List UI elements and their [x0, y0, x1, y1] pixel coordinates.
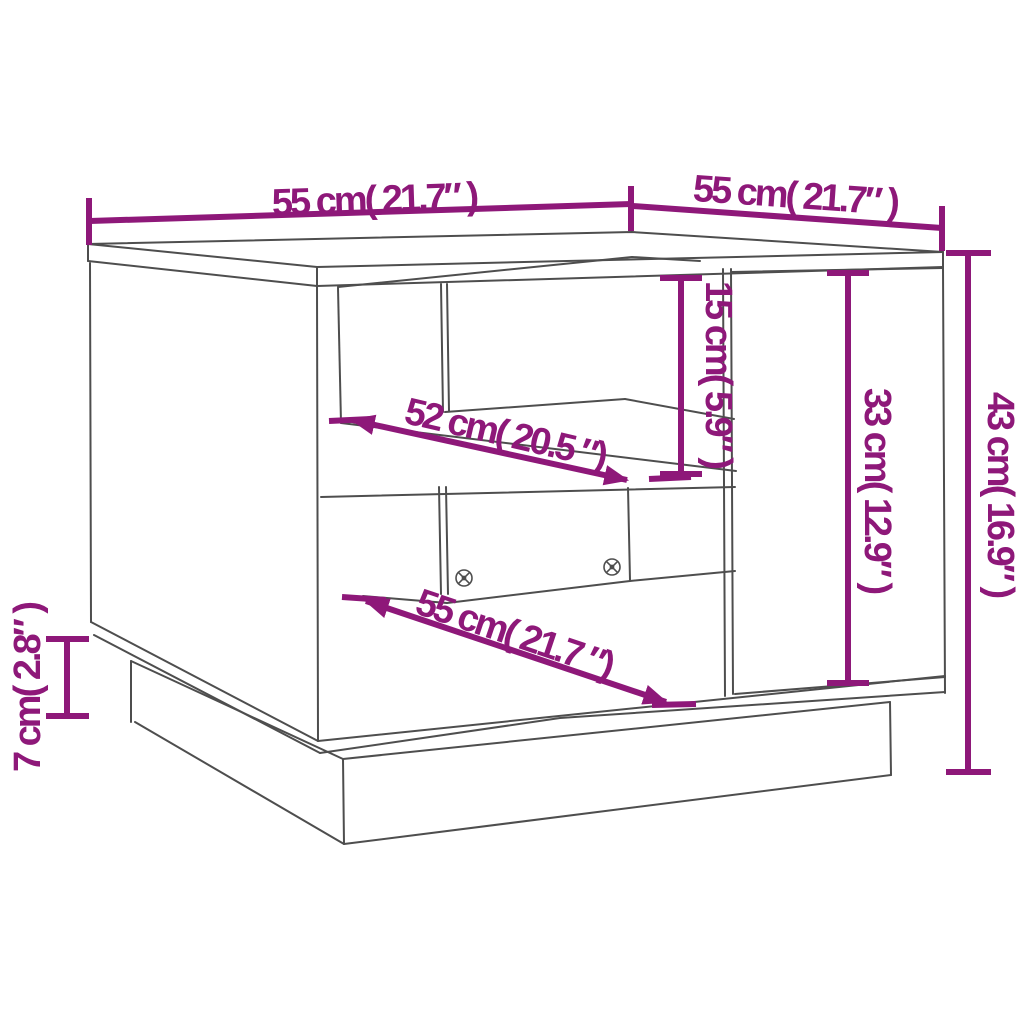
tabletop-front-edges: [88, 244, 943, 267]
dimension-label: 55 cm( 21.7 ″): [410, 582, 618, 687]
dimension-top-depth: 55 cm( 21.7″ ): [633, 168, 942, 251]
dimension-shelf-depth: 52 cm( 20.5 ″): [329, 391, 691, 480]
left-panel-outer-edge: [90, 263, 91, 622]
plinth-front-corner: [343, 759, 344, 844]
back-upright-lower-a: [439, 487, 441, 594]
bottom-slab-left-edge: [94, 635, 320, 753]
dimension-label: 7 cm( 2.8″ ): [7, 603, 49, 772]
dimension-tick: [342, 597, 386, 600]
bottom-slab-front-edge: [320, 692, 945, 753]
dimension-shelf-clearance: 15 cm( 5.9″ ): [660, 278, 739, 474]
dimension-height-total: 43 cm( 16.9″ ): [946, 253, 1021, 772]
plinth: [131, 661, 891, 844]
left-panel: [90, 263, 320, 753]
dimension-inner-width: 55 cm( 21.7 ″): [342, 582, 696, 705]
dimension-tick: [652, 704, 696, 705]
dimension-door-height: 33 cm( 12.9″ ): [827, 273, 898, 683]
dimension-diagram: 55 cm( 21.7″ ) 55 cm( 21.7″ ) 43 cm( 16.…: [0, 0, 1024, 1024]
front-corner-edge: [317, 286, 318, 741]
tabletop: [88, 232, 943, 287]
dimension-label: 55 cm( 21.7″ ): [692, 168, 900, 224]
plinth-left-bottom-edge: [135, 722, 344, 844]
dimension-label: 43 cm( 16.9″ ): [979, 392, 1021, 598]
tabletop-bottom-edges: [88, 261, 943, 286]
dimension-base-height: 7 cm( 2.8″ ): [7, 603, 89, 772]
back-upright-upper-b: [447, 284, 449, 411]
plinth-right-bottom-edge: [344, 775, 891, 844]
dimensions: 55 cm( 21.7″ ) 55 cm( 21.7″ ) 43 cm( 16.…: [7, 168, 1021, 772]
left-inner-edge: [338, 288, 341, 423]
screw-icon: [604, 559, 620, 575]
dimension-label: 15 cm( 5.9″ ): [697, 281, 739, 469]
table-outline: [88, 232, 945, 844]
tabletop-back-edges: [88, 232, 943, 252]
dimension-label: 52 cm( 20.5 ″): [401, 391, 611, 478]
plinth-left-top-edge: [131, 661, 343, 759]
right-back-edge: [943, 267, 945, 693]
drawing-canvas: 55 cm( 21.7″ ) 55 cm( 21.7″ ) 43 cm( 16.…: [0, 0, 1024, 1024]
left-panel-bottom-edge: [91, 622, 318, 741]
dimension-label: 33 cm( 12.9″ ): [856, 388, 898, 594]
dimension-tick: [649, 477, 691, 479]
divider-and-door: [723, 268, 945, 696]
shelf-bottom-edge: [321, 487, 735, 497]
screw-icon: [456, 570, 472, 586]
screws: [456, 559, 620, 586]
dimension-label: 55 cm( 21.7″ ): [271, 175, 478, 224]
back-upright-upper-a: [441, 284, 443, 412]
plinth-right-edge: [890, 702, 891, 775]
back-upright-lower-b: [446, 487, 448, 594]
back-corner-lower-edge: [628, 488, 630, 580]
